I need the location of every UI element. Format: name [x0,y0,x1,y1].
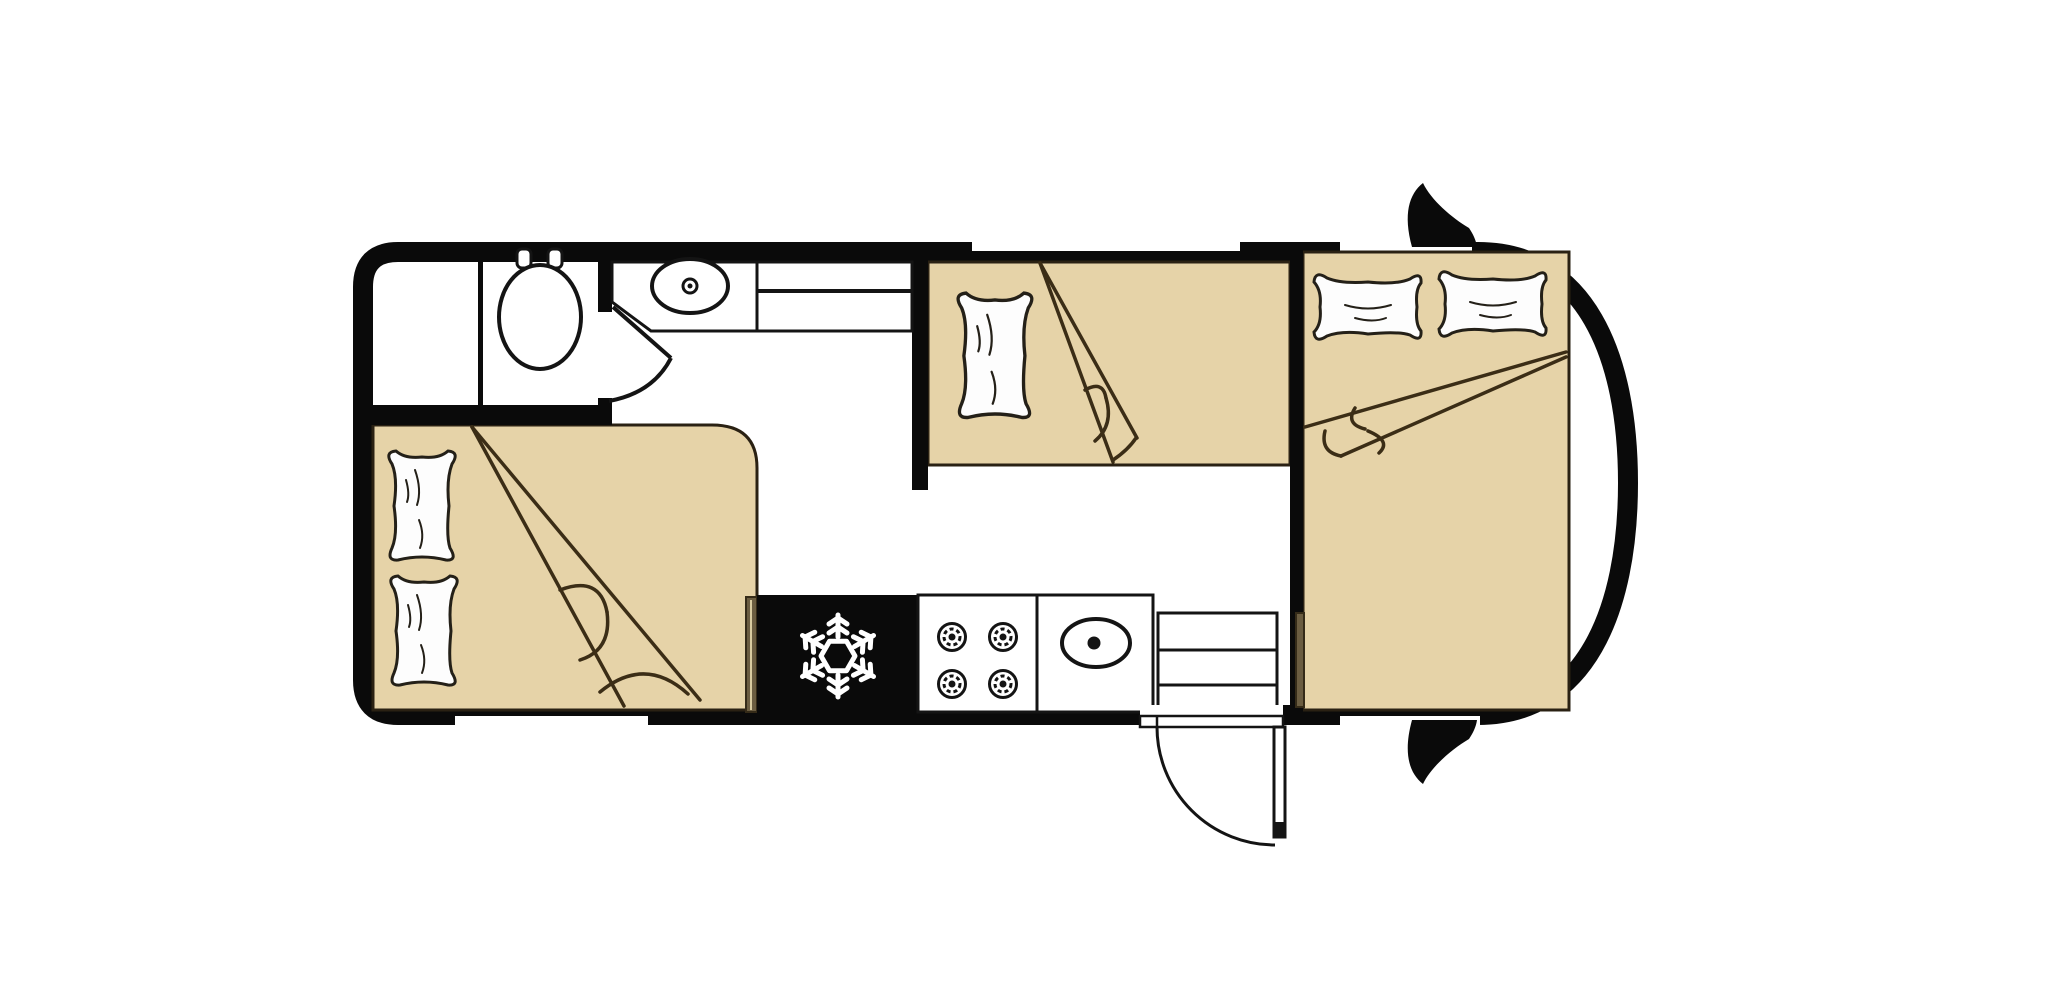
window-top-middle [972,241,1240,251]
bathroom-sink-drain [688,284,693,289]
toilet-bowl [499,265,581,369]
wall-bathroom-bottom [353,405,612,425]
pillow-icon-rear-2 [391,576,457,685]
hob-counter [918,595,1037,712]
accent-panel-left [746,597,757,712]
floorplan-canvas [0,0,2048,987]
wall-middle-bed [912,242,928,490]
kitchen [746,595,1153,717]
entry-door-leaf-tip [1274,822,1285,837]
kitchen-sink-tap [1088,637,1101,650]
kitchen-sink-unit [1037,595,1153,712]
floorplan-page [0,0,2048,987]
pillow-icon-middle [958,293,1032,417]
vanity [612,259,912,331]
step-1 [1158,613,1277,650]
wall-shower-toilet [478,262,483,405]
window-bottom-rear [455,716,648,725]
pillow-icon-front-1 [1314,275,1421,339]
overhead-cabinet [757,262,912,331]
entry-steps [1158,613,1277,716]
door-threshold [1140,716,1283,727]
pillow-icon-rear-1 [389,451,455,560]
pillow-icon-front-2 [1439,272,1546,336]
wall-bathroom-door-stub-top [598,262,612,312]
entry-door-leaf [1274,727,1285,837]
accent-bar-front [1296,613,1304,707]
hob [918,595,1037,712]
step-2 [1158,650,1277,685]
